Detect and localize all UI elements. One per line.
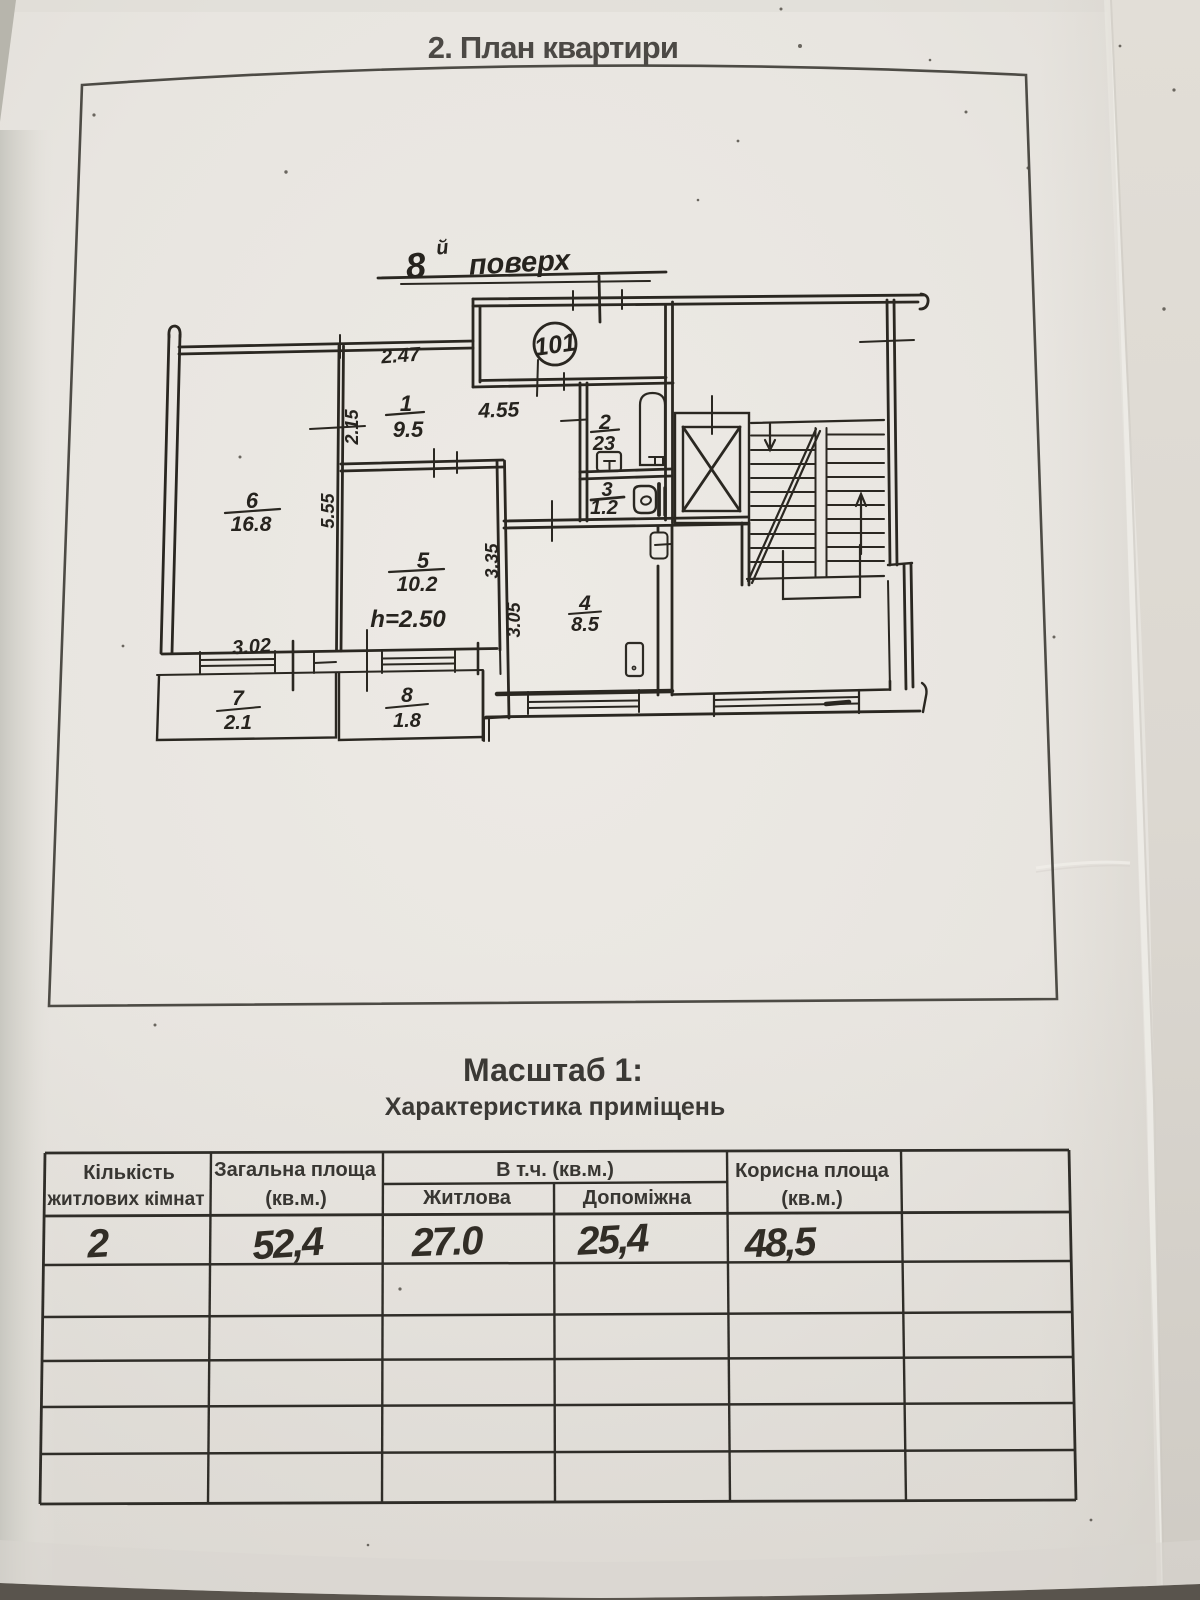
svg-text:Характеристика приміщень: Характеристика приміщень — [385, 1093, 726, 1121]
svg-text:10.2: 10.2 — [397, 573, 438, 596]
svg-text:3.02: 3.02 — [231, 635, 271, 660]
svg-text:й: й — [435, 236, 449, 259]
svg-text:В т.ч. (кв.м.): В т.ч. (кв.м.) — [496, 1159, 614, 1181]
svg-text:5: 5 — [417, 548, 430, 573]
svg-text:16.8: 16.8 — [231, 513, 272, 536]
svg-text:2.15: 2.15 — [342, 409, 362, 446]
svg-text:52,4: 52,4 — [251, 1220, 326, 1269]
svg-text:48,5: 48,5 — [743, 1220, 818, 1267]
svg-text:101: 101 — [533, 328, 578, 362]
svg-text:8: 8 — [401, 684, 413, 707]
svg-text:5.55: 5.55 — [318, 493, 338, 529]
svg-text:3.35: 3.35 — [482, 543, 502, 579]
svg-text:Кількість: Кількість — [83, 1162, 175, 1184]
svg-text:4: 4 — [578, 592, 591, 615]
svg-text:2: 2 — [85, 1221, 110, 1266]
svg-text:2.47: 2.47 — [379, 344, 421, 369]
svg-text:2: 2 — [598, 411, 611, 434]
svg-text:(кв.м.): (кв.м.) — [265, 1188, 327, 1210]
svg-text:9.5: 9.5 — [393, 417, 424, 442]
svg-text:27.0: 27.0 — [410, 1219, 484, 1266]
svg-text:Корисна площа: Корисна площа — [735, 1160, 890, 1182]
svg-text:Допоміжна: Допоміжна — [583, 1187, 692, 1209]
svg-text:6: 6 — [246, 488, 259, 513]
svg-text:8: 8 — [404, 244, 428, 287]
svg-text:Загальна площа: Загальна площа — [214, 1159, 377, 1181]
svg-text:2. План квартири: 2. План квартири — [428, 30, 678, 65]
svg-text:2.1: 2.1 — [223, 712, 252, 734]
svg-text:4.55: 4.55 — [477, 398, 520, 422]
svg-text:25,4: 25,4 — [575, 1216, 650, 1264]
svg-text:житлових кімнат: житлових кімнат — [46, 1189, 204, 1210]
svg-text:7: 7 — [232, 687, 245, 710]
svg-text:3.05: 3.05 — [504, 602, 524, 638]
svg-text:Житлова: Житлова — [422, 1187, 512, 1209]
svg-text:1.2: 1.2 — [590, 497, 618, 519]
svg-text:8.5: 8.5 — [571, 614, 600, 636]
svg-text:1: 1 — [400, 391, 412, 416]
svg-text:h=2.50: h=2.50 — [370, 606, 446, 633]
svg-text:Масштаб 1:: Масштаб 1: — [463, 1052, 643, 1088]
svg-text:1.8: 1.8 — [393, 710, 422, 732]
svg-text:(кв.м.): (кв.м.) — [781, 1188, 843, 1210]
svg-text:поверх: поверх — [468, 244, 573, 281]
svg-text:23: 23 — [592, 433, 615, 455]
